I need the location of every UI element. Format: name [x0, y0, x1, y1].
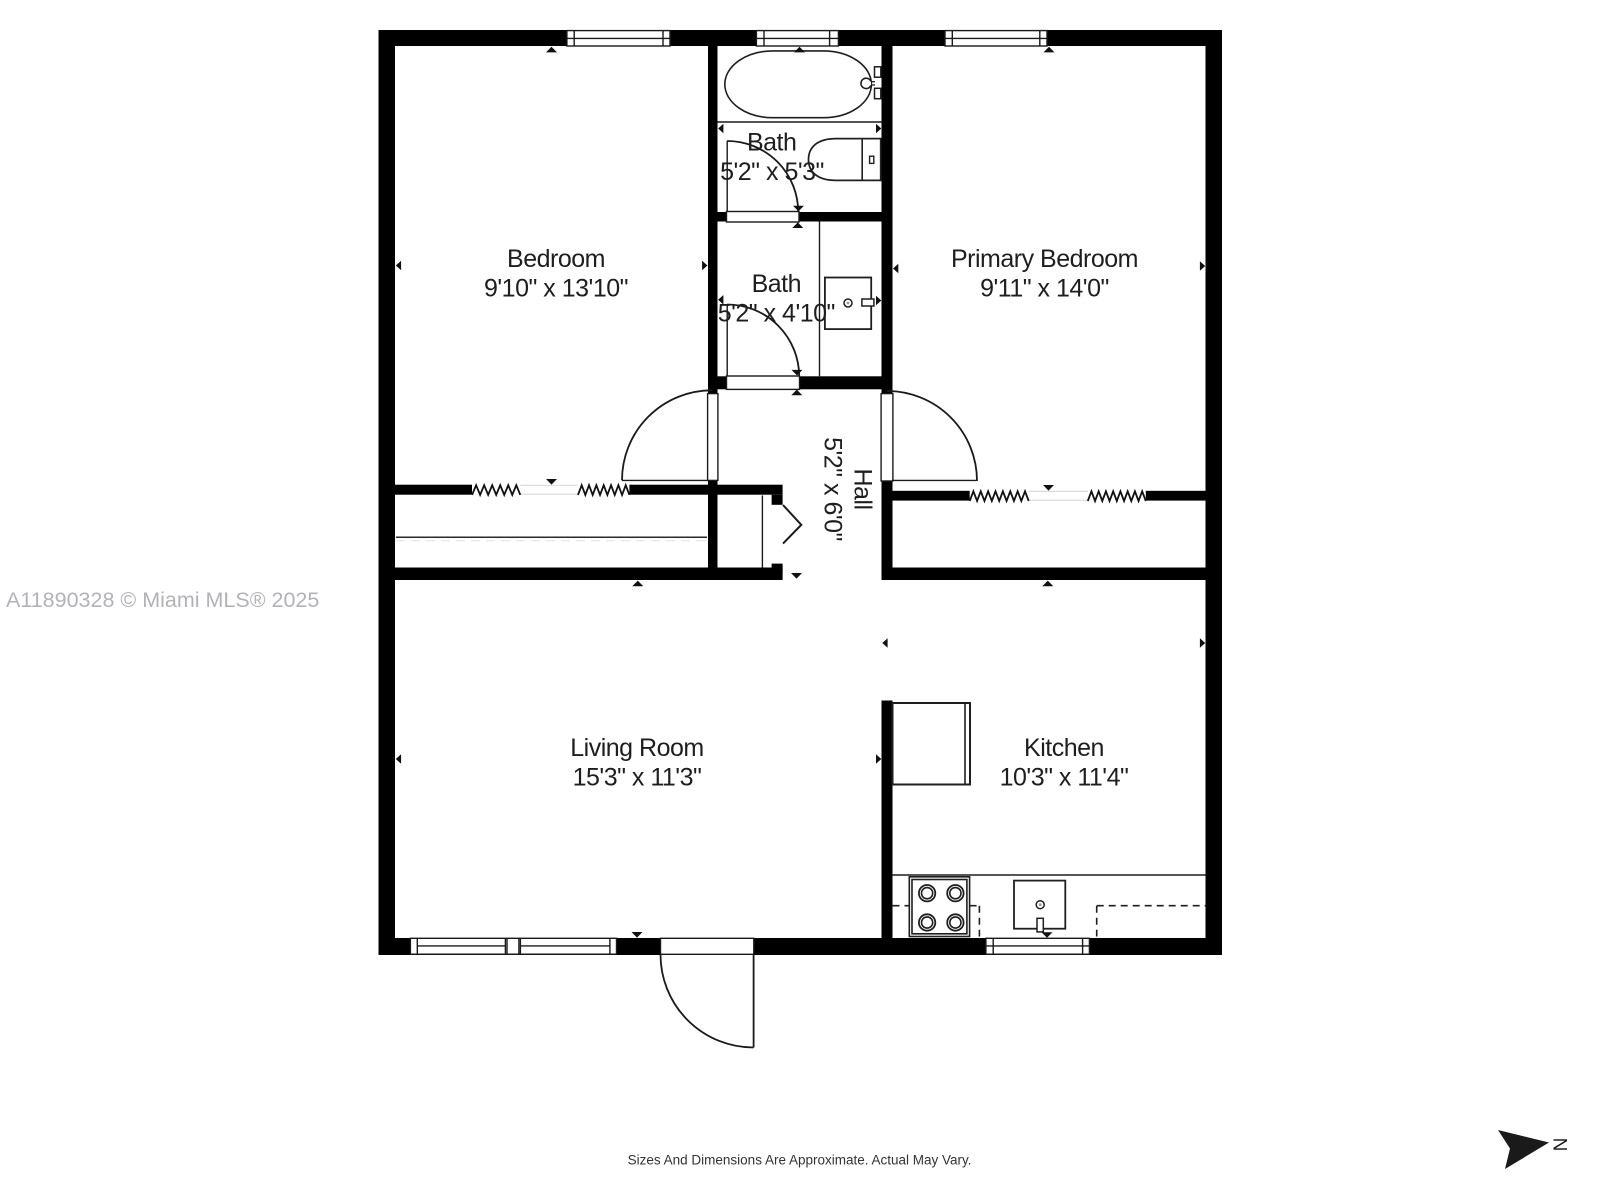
svg-text:N: N: [1549, 1138, 1570, 1152]
svg-text:A11890328 © Miami MLS® 2025: A11890328 © Miami MLS® 2025: [6, 588, 319, 612]
svg-text:9'10" x 13'10": 9'10" x 13'10": [484, 275, 628, 303]
svg-text:10'3" x 11'4": 10'3" x 11'4": [1000, 764, 1129, 792]
svg-text:Living Room: Living Room: [570, 734, 703, 762]
svg-text:5'2" x 6'0": 5'2" x 6'0": [819, 437, 847, 541]
svg-text:Sizes And Dimensions Are Appro: Sizes And Dimensions Are Approximate. Ac…: [628, 1153, 972, 1168]
svg-text:15'3" x 11'3": 15'3" x 11'3": [573, 764, 702, 792]
svg-text:Hall: Hall: [849, 468, 877, 509]
svg-text:Bedroom: Bedroom: [507, 245, 605, 273]
svg-text:Primary Bedroom: Primary Bedroom: [951, 245, 1138, 273]
svg-text:9'11" x 14'0": 9'11" x 14'0": [980, 275, 1109, 303]
svg-text:Kitchen: Kitchen: [1024, 734, 1104, 762]
svg-text:Bath: Bath: [747, 129, 796, 157]
svg-text:5'2" x 5'3": 5'2" x 5'3": [720, 158, 824, 186]
svg-text:Bath: Bath: [752, 270, 801, 298]
svg-text:5'2" x 4'10": 5'2" x 4'10": [718, 300, 835, 328]
